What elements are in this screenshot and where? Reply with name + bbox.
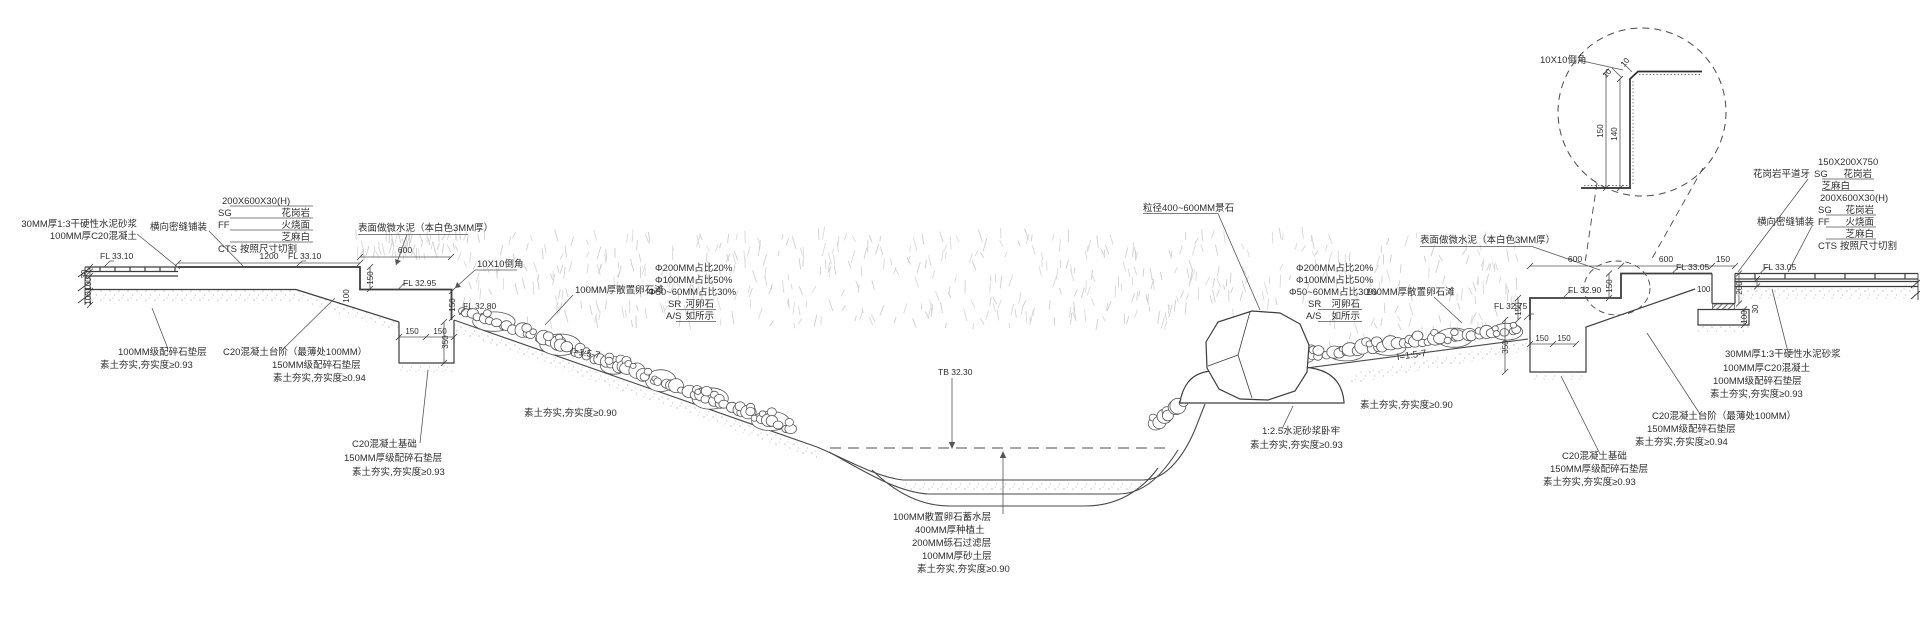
- annotation-label: 150: [1596, 124, 1605, 138]
- annotation-label: 200: [1735, 281, 1744, 295]
- annotation-label: 100: [84, 291, 93, 305]
- annotation-label: 200X600X30(H): [222, 196, 290, 207]
- annotation-label: 素土夯实,夯实度≥0.93: [352, 466, 445, 478]
- cobble-stone: [1451, 329, 1459, 336]
- annotation-label: 100: [342, 289, 351, 303]
- annotation-label: 150: [1514, 302, 1523, 316]
- annotation-label: 如所示: [1331, 310, 1360, 322]
- cobble-stone: [1444, 337, 1451, 344]
- annotation-label: 火烧面: [281, 219, 310, 231]
- annotation-label: 粒径400~600MM景石: [1143, 202, 1234, 214]
- annotation-label: 素土夯实,夯实度≥0.94: [273, 372, 366, 384]
- annotation-label: 150: [1605, 279, 1614, 293]
- annotation-label: 河卵石: [1331, 298, 1360, 310]
- annotation-label: 100MM级配碎石垫层: [1713, 375, 1802, 387]
- cobble-stone: [605, 357, 613, 364]
- annotation-label: CTS: [1818, 241, 1837, 252]
- annotation-label: 150: [448, 298, 457, 312]
- annotation-label: FF: [1818, 217, 1830, 228]
- annotation-label: FL 33.05: [1676, 262, 1710, 272]
- annotation-label: 1:2.5水泥砂浆卧牢: [1262, 425, 1340, 437]
- annotation-label: 10X10倒角: [1540, 54, 1586, 66]
- annotation-label: 30: [80, 269, 89, 278]
- annotation-label: 表面做微水泥（本白色3MM厚）: [1420, 234, 1555, 246]
- annotation-label: Φ200MM占比20%: [1296, 262, 1374, 274]
- annotation-label: 素土夯实,夯实度≥0.94: [1635, 436, 1728, 448]
- annotation-label: 150X200X750: [1818, 157, 1878, 168]
- annotation-label: 100: [1740, 310, 1749, 324]
- annotation-label: 素土夯实,夯实度≥0.93: [1543, 476, 1636, 488]
- annotation-label: 30: [1751, 304, 1760, 313]
- annotation-label: 10X10倒角: [477, 258, 523, 270]
- annotation-label: 横向密缝铺装: [150, 221, 208, 233]
- annotation-label: A/S: [1306, 311, 1321, 322]
- cobble-stone: [767, 408, 776, 416]
- annotation-label: 1200: [260, 251, 279, 261]
- annotation-label: 芝麻白: [281, 231, 310, 243]
- annotation-label: 100MM厚C20混凝土: [1723, 362, 1811, 374]
- annotation-label: 150MM级配碎石垫层: [1647, 423, 1736, 435]
- cobble-stone: [785, 419, 793, 427]
- annotation-label: 600: [398, 245, 412, 255]
- annotation-label: 30MM厚1:3干硬性水泥砂浆: [1725, 348, 1841, 360]
- annotation-label: 素土夯实,夯实度≥0.93: [100, 359, 193, 371]
- annotation-label: 花岗岩: [1845, 204, 1874, 216]
- annotation-label: FL 32.80: [463, 301, 497, 311]
- annotation-label: 600: [1659, 254, 1673, 264]
- annotation-label: SR: [1308, 299, 1321, 310]
- annotation-label: 600: [1568, 254, 1582, 264]
- annotation-label: 150: [1557, 334, 1571, 343]
- cobble-stone: [530, 329, 537, 335]
- annotation-label: Φ100MM占比50%: [1296, 274, 1374, 286]
- annotation-label: 100MM厚散置卵石滩: [1366, 286, 1455, 298]
- cobble-stone: [746, 407, 755, 415]
- annotation-label: FL 32.90: [1568, 285, 1602, 295]
- annotation-label: 100MM厚砂土层: [922, 550, 992, 562]
- annotation-label: 100: [84, 277, 93, 291]
- boulder-outline: [1206, 311, 1309, 400]
- annotation-label: FF: [218, 220, 230, 231]
- annotation-label: 芝麻白: [1821, 180, 1850, 192]
- annotation-label: 横向密缝铺装: [1757, 216, 1815, 228]
- cobble-stone: [1510, 322, 1516, 328]
- annotation-label: 素土夯实,夯实度≥0.90: [524, 407, 617, 419]
- annotation-label: 火烧面: [1845, 216, 1874, 228]
- annotation-label: 150MM厚级配碎石垫层: [344, 452, 442, 464]
- annotation-label: Φ100MM占比50%: [655, 274, 733, 286]
- annotation-label: 按照尺寸切割: [1840, 240, 1897, 252]
- cobble-stone: [773, 421, 783, 429]
- annotation-label: Φ50~60MM占比30%: [648, 286, 737, 298]
- annotation-label: SG: [1814, 169, 1828, 180]
- cobble-stone: [1493, 331, 1500, 337]
- annotation-label: Φ50~60MM占比30%: [1289, 286, 1378, 298]
- annotation-label: FL 33.05: [1763, 262, 1797, 272]
- annotation-label: 100: [1697, 285, 1711, 294]
- annotation-label: 150MM级配碎石垫层: [272, 359, 361, 371]
- annotation-label: 100MM厚C20混凝土: [50, 230, 138, 242]
- cobble-stone: [695, 389, 701, 394]
- annotation-label: 100MM级配碎石垫层: [118, 346, 207, 358]
- annotation-label: 素土夯实,夯实度≥0.90: [917, 563, 1010, 575]
- construction-section-drawing: 30MM厚1:3干硬性水泥砂浆100MM厚C20混凝土横向密缝铺装200X600…: [0, 0, 1920, 637]
- annotation-label: CTS: [218, 244, 237, 255]
- annotation-label: 150: [405, 327, 419, 336]
- annotation-label: 30MM厚1:3干硬性水泥砂浆: [21, 218, 137, 230]
- curb-mortar-bed: [1713, 304, 1735, 310]
- annotation-label: 150: [1535, 334, 1549, 343]
- annotation-label: 400MM厚种植土: [915, 524, 985, 536]
- annotation-label: A/S: [666, 311, 681, 322]
- annotation-label: 芝麻白: [1845, 228, 1874, 240]
- annotation-label: 350: [1501, 340, 1510, 354]
- annotation-label: 150: [1716, 254, 1730, 264]
- cobble-stone: [654, 378, 662, 386]
- annotation-label: FL 33.10: [100, 251, 134, 261]
- annotation-label: SG: [218, 208, 232, 219]
- annotation-label: FL 32.95: [403, 278, 437, 288]
- annotation-label: Φ200MM占比20%: [655, 262, 733, 274]
- annotation-label: C20混凝土基础: [1562, 450, 1627, 462]
- annotation-label: 花岗岩: [281, 207, 310, 219]
- annotation-label: 150MM厚级配碎石垫层: [1550, 463, 1648, 475]
- cobble-stone: [701, 395, 710, 403]
- annotation-label: C20混凝土台阶（最薄处100MM）: [223, 346, 367, 358]
- annotation-label: 150: [366, 271, 375, 285]
- annotation-label: 花岗岩: [1843, 168, 1872, 180]
- cobble-stone: [1500, 329, 1509, 337]
- annotation-label: 素土夯实,夯实度≥0.90: [1360, 399, 1453, 411]
- annotation-label: SG: [1818, 205, 1832, 216]
- annotation-label: 150: [433, 327, 447, 336]
- annotation-label: 表面做微水泥（本白色3MM厚）: [358, 222, 493, 234]
- annotation-label: 350: [441, 335, 450, 349]
- annotation-label: 200MM砾石过滤层: [912, 537, 991, 549]
- annotation-label: 100MM散置卵石蓄水层: [893, 511, 991, 523]
- annotation-label: 如所示: [685, 310, 714, 322]
- cobble-stone: [644, 368, 652, 375]
- cobble-stone: [630, 363, 636, 368]
- annotation-label: SR: [668, 299, 681, 310]
- annotation-label: 素土夯实,夯实度≥0.93: [1250, 439, 1343, 451]
- annotation-label: 200X600X30(H): [1820, 193, 1888, 204]
- annotation-label: 花岗岩平道牙: [1753, 168, 1810, 180]
- annotation-label: C20混凝土台阶（最薄处100MM）: [1652, 410, 1796, 422]
- annotation-label: FL 33.10: [288, 251, 322, 261]
- annotation-label: C20混凝土基础: [352, 438, 417, 450]
- annotation-label: 140: [1610, 127, 1619, 141]
- annotation-label: 素土夯实,夯实度≥0.93: [1710, 388, 1803, 400]
- annotation-label: TB 32.30: [938, 367, 973, 377]
- annotation-label: 河卵石: [685, 298, 714, 310]
